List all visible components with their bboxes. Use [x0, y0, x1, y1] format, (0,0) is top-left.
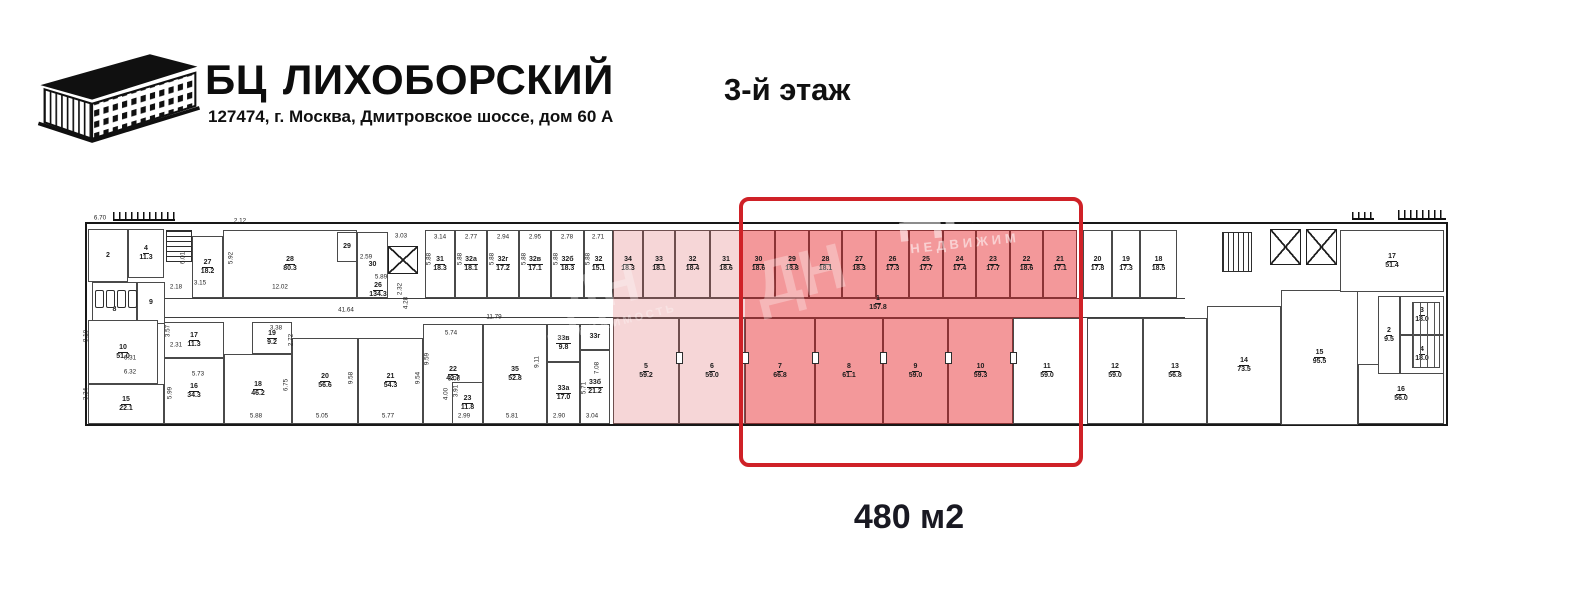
room-label: 1259.0: [1108, 363, 1122, 379]
dimension-label: 2.71: [592, 234, 604, 241]
room-number: 1: [875, 295, 882, 304]
room-number: 21: [385, 373, 396, 382]
door-marker: [945, 352, 952, 364]
dimension-label: 5.92: [228, 252, 235, 264]
dimension-label: 3.14: [434, 234, 446, 241]
room-number: 18: [1153, 256, 1164, 265]
dimension-label: 5.88: [250, 413, 262, 420]
room-area: 66.8: [773, 372, 787, 380]
room-28: 2818.1: [809, 230, 842, 298]
room-31: 3118.6: [710, 230, 742, 298]
dimension-label: 3.57: [165, 325, 172, 337]
room-8: 861.1: [815, 318, 883, 424]
vent-grille-icon: [1352, 212, 1374, 220]
room-label: 1159.0: [1040, 363, 1054, 379]
room-number: 28: [285, 256, 296, 265]
room-33: 3318.1: [643, 230, 675, 298]
room-number: 16: [1396, 386, 1407, 395]
room-11: 1159.0: [1013, 318, 1081, 424]
room-label: 3118.6: [719, 256, 733, 272]
dimension-label: 4.00: [443, 388, 450, 400]
room-label: 559.2: [639, 363, 653, 379]
toilet-fixture-icon: [95, 290, 104, 308]
room-34: 3418.3: [613, 230, 643, 298]
room-area: 17.1: [1053, 265, 1067, 273]
room-label: 1595.5: [1313, 349, 1327, 365]
corridor: [613, 298, 745, 318]
room-21: 2154.3: [358, 338, 423, 424]
room-area: 9.2: [267, 339, 277, 347]
dimension-label: 2.72: [288, 334, 295, 346]
room-label: 1473.5: [1237, 357, 1251, 373]
dimension-label: 5.81: [506, 413, 518, 420]
dimension-label: 5.71: [581, 382, 588, 394]
room-29: 2918.8: [775, 230, 809, 298]
dimension-label: 5.99: [167, 387, 174, 399]
room-14: 1473.5: [1207, 306, 1281, 424]
door-marker: [880, 352, 887, 364]
room-number: 31: [435, 256, 446, 265]
room-label: 2617.3: [886, 256, 900, 272]
room-label: 2417.4: [953, 256, 967, 272]
room-number: 28: [820, 256, 831, 265]
room-number: 32: [593, 256, 604, 265]
dimension-label: 2.31: [170, 342, 182, 349]
elevator-shaft-icon: [388, 246, 418, 274]
room-label: 766.8: [773, 363, 787, 379]
room-label: 29: [343, 243, 351, 251]
room-number: 23: [988, 256, 999, 265]
room-number: 20: [1092, 256, 1103, 265]
room-label: 33б21.2: [587, 379, 602, 395]
room-number: 32г: [496, 256, 510, 265]
room-area: 80.3: [283, 265, 297, 273]
room-number: 32в: [527, 256, 542, 265]
dimension-label: 3.03: [395, 233, 407, 240]
room-area: 18.3: [621, 265, 635, 273]
room-15: 1595.5: [1281, 290, 1358, 425]
room-area: 9.8: [559, 344, 569, 352]
room-label: 33в9.8: [556, 335, 571, 351]
room-number: 5: [643, 363, 650, 372]
dimension-label: 9.59: [424, 353, 431, 365]
room-22: 2218.6: [1010, 230, 1043, 298]
dimension-label: 12.02: [272, 284, 288, 291]
dimension-label: 2.94: [497, 234, 509, 241]
room-label: 33г: [590, 333, 601, 341]
room-number: 14: [1239, 357, 1250, 366]
dimension-label: 9.54: [415, 372, 422, 384]
room-23: 2317.7: [976, 230, 1010, 298]
dimension-label: 41.64: [338, 307, 354, 314]
room-number: 33а: [556, 385, 571, 394]
room-number: 33б: [587, 379, 602, 388]
room-number: 10: [118, 344, 129, 353]
room-label: 3218.4: [686, 256, 700, 272]
room-area: 18.3: [561, 265, 575, 273]
room-number: 24: [954, 256, 965, 265]
room-area: 17.3: [1119, 265, 1133, 273]
room-label: 1917.3: [1119, 256, 1133, 272]
door-marker: [812, 352, 819, 364]
dimension-label: 6.75: [283, 379, 290, 391]
room-area: 59.3: [974, 372, 988, 380]
room-area: 46.2: [251, 390, 265, 398]
room-label: 32г17.2: [496, 256, 510, 272]
corridor: [745, 298, 1081, 318]
corridor: [1081, 298, 1185, 318]
room-number: 32: [687, 256, 698, 265]
room-label: 411.3: [139, 245, 152, 261]
room-label: 2017.8: [1091, 256, 1105, 272]
toilet-fixture-icon: [106, 290, 115, 308]
room-number: 9: [149, 299, 153, 307]
room-35: 3552.8: [483, 324, 547, 424]
dimension-label: 3.91: [453, 385, 460, 397]
room-area: 134.3: [369, 291, 387, 299]
dimension-label: 3.04: [586, 413, 598, 420]
room-24: 2417.4: [943, 230, 976, 298]
room-number: 15: [121, 396, 132, 405]
screenshot-root: { "header": { "brand_prefix": "БЦ", "bra…: [0, 0, 1592, 600]
dimension-label: 3.38: [270, 325, 282, 332]
room-label: 2317.7: [986, 256, 1000, 272]
room-25: 2517.7: [909, 230, 943, 298]
dimension-label: 5.88: [521, 253, 528, 265]
room-area: 18.1: [819, 265, 833, 273]
room-area: 18.1: [652, 265, 666, 273]
room-area: 95.5: [1313, 358, 1327, 366]
room-number: 17: [1387, 253, 1398, 262]
room-10: 1059.3: [948, 318, 1013, 424]
room-number: 17: [189, 332, 200, 341]
room-33г: 33г: [580, 324, 610, 350]
room-area: 18.6: [1020, 265, 1034, 273]
room-label: 1711.3: [187, 332, 200, 348]
dimension-label: 5.73: [192, 371, 204, 378]
room-label: 3118.3: [433, 256, 447, 272]
room-area: 18.4: [686, 265, 700, 273]
dimension-label: 5.74: [445, 330, 457, 337]
room-area: 21.2: [588, 388, 602, 396]
room-number: 30: [753, 256, 764, 265]
room-number: 32а: [464, 256, 479, 265]
room-label: 33а17.0: [556, 385, 571, 401]
room-label: 2117.1: [1053, 256, 1067, 272]
room-number: 33: [654, 256, 665, 265]
dimension-label: 6.70: [94, 215, 106, 222]
room-21: 2117.1: [1043, 230, 1077, 298]
vent-grille-icon: [113, 212, 175, 221]
room-label: 2718.2: [201, 259, 215, 275]
radiator-icon: [1412, 302, 1440, 368]
dimension-label: 2.59: [360, 254, 372, 261]
room-area: 59.0: [1040, 372, 1054, 380]
room-17: 1751.4: [1340, 230, 1444, 292]
room-number: 22: [448, 366, 459, 375]
room-label: 199.2: [267, 330, 278, 346]
room-area: 17.2: [496, 265, 510, 273]
room-7: 766.8: [745, 318, 815, 424]
room-5: 559.2: [613, 318, 679, 424]
room-area: 9.5: [1384, 336, 1394, 344]
dimension-label: 2.77: [465, 234, 477, 241]
room-area: 61.1: [842, 372, 856, 380]
room-number: 33г: [590, 333, 601, 341]
room-29: 29: [337, 232, 357, 262]
room-area: 17.7: [919, 265, 933, 273]
room-area: 56.6: [318, 382, 332, 390]
room-area: 18.8: [785, 265, 799, 273]
room-number: 20: [320, 373, 331, 382]
room-area: 157.8: [869, 304, 887, 312]
room-label: 1818.5: [1152, 256, 1166, 272]
room-area: 11.3: [187, 341, 200, 349]
dimension-label: 3.34: [83, 388, 90, 400]
room-area: 59.0: [1108, 372, 1122, 380]
room-number: 10: [975, 363, 986, 372]
corridor: [165, 298, 613, 318]
room-label: 1356.8: [1168, 363, 1182, 379]
door-marker: [1010, 352, 1017, 364]
room-area: 11.3: [139, 254, 152, 262]
room-number: 16: [189, 383, 200, 392]
toilet-fixture-icon: [128, 290, 137, 308]
room-label: 30: [369, 261, 377, 269]
dimension-label: 2.90: [553, 413, 565, 420]
room-12: 1259.0: [1087, 318, 1143, 424]
toilet-fixture-icon: [117, 290, 126, 308]
room-15: 1522.1: [88, 384, 164, 424]
dimension-label: 2.95: [529, 234, 541, 241]
room-label: 2880.3: [283, 256, 297, 272]
room-number: 8: [846, 363, 853, 372]
room-label: 1634.3: [187, 383, 201, 399]
dimension-label: 2.12: [234, 218, 246, 225]
room-number: 6: [709, 363, 716, 372]
room-label: 32а18.1: [464, 256, 479, 272]
room-label: 861.1: [842, 363, 856, 379]
room-area: 22.1: [119, 405, 133, 413]
room-label: 3552.8: [508, 366, 522, 382]
room-number: 7: [777, 363, 784, 372]
highlight-area-label: 480 м2: [784, 498, 1034, 537]
room-label: 3018.6: [752, 256, 766, 272]
room-area: 18.3: [433, 265, 447, 273]
dimension-label: 5.88: [489, 253, 496, 265]
room-label: 2918.8: [785, 256, 799, 272]
stairs-icon: [1222, 232, 1252, 272]
dimension-label: 9.58: [348, 372, 355, 384]
room-area: 73.5: [1237, 366, 1251, 374]
room-2: 29.5: [1378, 296, 1400, 374]
room-area: 17.0: [557, 394, 571, 402]
room-area: 17.4: [953, 265, 967, 273]
room-area: 18.1: [464, 265, 478, 273]
dimension-label: 3.08: [448, 376, 460, 383]
room-label: 32б18.3: [560, 256, 575, 272]
room-26: 2617.3: [876, 230, 909, 298]
room-area: 18.3: [852, 265, 866, 273]
room-area: 34.3: [187, 392, 201, 400]
room-number: 23: [462, 395, 473, 404]
room-area: 59.2: [639, 372, 653, 380]
room-label: 26134.3: [369, 282, 387, 298]
room-2: 2: [88, 229, 128, 282]
room-label: 2: [106, 252, 110, 260]
dimension-label: 11.79: [486, 314, 501, 321]
room-number: 26: [887, 256, 898, 265]
room-area: 54.3: [384, 382, 398, 390]
room-18: 1818.5: [1140, 230, 1177, 298]
room-number: 26: [373, 282, 384, 291]
room-number: 27: [202, 259, 213, 268]
room-number: 30: [369, 261, 377, 269]
room-label: 1157.8: [869, 295, 887, 311]
room-number: 2: [106, 252, 110, 260]
room-13: 1356.8: [1143, 318, 1207, 424]
dimension-label: 2.32: [397, 283, 404, 295]
room-19: 1917.3: [1112, 230, 1140, 298]
room-26: 26134.3: [358, 282, 398, 298]
door-marker: [676, 352, 683, 364]
dimension-label: 5.88: [457, 253, 464, 265]
room-9: 9: [137, 282, 165, 324]
room-number: 21: [1055, 256, 1066, 265]
room-number: 2: [1386, 327, 1393, 336]
room-number: 34: [623, 256, 634, 265]
room-label: 959.0: [909, 363, 923, 379]
room-area: 18.2: [201, 268, 215, 276]
room-label: 1656.0: [1394, 386, 1408, 402]
dimension-label: 5.88: [426, 253, 433, 265]
room-area: 11.8: [461, 404, 474, 412]
room-area: 18.6: [719, 265, 733, 273]
room-area: 56.8: [1168, 372, 1182, 380]
room-number: 12: [1110, 363, 1121, 372]
room-20: 2017.8: [1083, 230, 1112, 298]
room-27: 2718.3: [842, 230, 876, 298]
room-number: 11: [1042, 363, 1052, 372]
room-label: 1846.2: [251, 381, 265, 397]
dimension-label: 6.01: [180, 252, 187, 264]
dimension-label: 5.05: [316, 413, 328, 420]
room-label: 2218.6: [1020, 256, 1034, 272]
room-label: 32в17.1: [527, 256, 542, 272]
dimension-label: 3.15: [194, 280, 206, 287]
room-area: 59.0: [705, 372, 719, 380]
dimension-label: 8.10: [83, 330, 90, 342]
room-32: 3218.4: [675, 230, 710, 298]
dimension-label: 5.88: [585, 253, 592, 265]
room-number: 18: [253, 381, 264, 390]
room-number: 27: [854, 256, 865, 265]
dimension-label: 6.32: [124, 369, 136, 376]
room-area: 59.0: [909, 372, 923, 380]
room-area: 52.8: [508, 375, 522, 383]
elevator-shaft-icon: [1270, 229, 1301, 265]
room-area: 17.7: [986, 265, 1000, 273]
dimension-label: 7.08: [594, 362, 601, 374]
room-label: 2818.1: [819, 256, 833, 272]
room-number: 13: [1170, 363, 1181, 372]
room-label: 2056.6: [318, 373, 332, 389]
room-number: 4: [143, 245, 150, 254]
vent-grille-icon: [1398, 210, 1446, 220]
room-33в: 33в9.8: [547, 324, 580, 362]
room-30: 3018.6: [742, 230, 775, 298]
room-label: 2154.3: [384, 373, 398, 389]
room-label: 1059.3: [974, 363, 988, 379]
dimension-label: 6.31: [124, 355, 136, 362]
room-label: 1751.4: [1385, 253, 1399, 269]
dimension-label: 5.77: [382, 413, 394, 420]
room-4: 411.3: [128, 229, 164, 278]
room-label: 3318.1: [652, 256, 666, 272]
room-number: 35: [510, 366, 521, 375]
room-number: 31: [721, 256, 732, 265]
door-marker: [742, 352, 749, 364]
elevator-shaft-icon: [1306, 229, 1337, 265]
dimension-label: 2.18: [170, 284, 182, 291]
room-27: 2718.2: [192, 236, 223, 298]
room-number: 32б: [560, 256, 575, 265]
room-label: 1522.1: [119, 396, 133, 412]
room-area: 15.1: [592, 265, 606, 273]
room-9: 959.0: [883, 318, 948, 424]
room-number: 15: [1314, 349, 1325, 358]
room-label: 2311.8: [461, 395, 474, 411]
room-area: 51.4: [1385, 262, 1399, 270]
room-area: 17.1: [528, 265, 542, 273]
room-label: 2517.7: [919, 256, 933, 272]
room-number: 33в: [556, 335, 571, 344]
room-label: 659.0: [705, 363, 719, 379]
room-area: 17.8: [1091, 265, 1105, 273]
room-number: 22: [1021, 256, 1032, 265]
room-label: 9: [149, 299, 153, 307]
room-number: 25: [921, 256, 932, 265]
dimension-label: 5.88: [553, 253, 560, 265]
room-label: 3418.3: [621, 256, 635, 272]
dimension-label: 2.78: [561, 234, 573, 241]
room-number: 19: [1121, 256, 1132, 265]
room-6: 659.0: [679, 318, 745, 424]
room-area: 18.5: [1152, 265, 1166, 273]
room-label: 2718.3: [852, 256, 866, 272]
room-label: 29.5: [1384, 327, 1394, 343]
room-17: 1711.3: [164, 322, 224, 358]
room-number: 29: [787, 256, 798, 265]
room-area: 18.6: [752, 265, 766, 273]
dimension-label: 5.89: [375, 274, 387, 281]
dimension-label: 9.11: [534, 356, 541, 368]
room-number: 29: [343, 243, 351, 251]
room-area: 17.3: [886, 265, 900, 273]
room-label: 3215.1: [592, 256, 606, 272]
dimension-label: 4.28: [403, 297, 410, 309]
dimension-label: 2.99: [458, 413, 470, 420]
room-number: 9: [912, 363, 919, 372]
room-1: 1157.8: [856, 294, 900, 312]
room-area: 56.0: [1394, 395, 1408, 403]
